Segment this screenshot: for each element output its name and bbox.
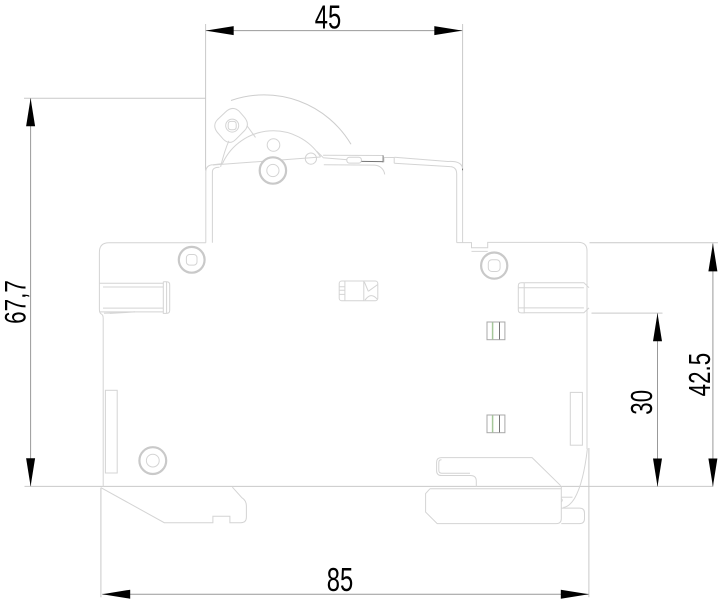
svg-text:45: 45 — [315, 0, 341, 37]
svg-text:85: 85 — [327, 562, 353, 599]
svg-text:67,7: 67,7 — [0, 280, 32, 324]
svg-text:42.5: 42.5 — [683, 353, 717, 396]
svg-text:30: 30 — [624, 390, 658, 415]
